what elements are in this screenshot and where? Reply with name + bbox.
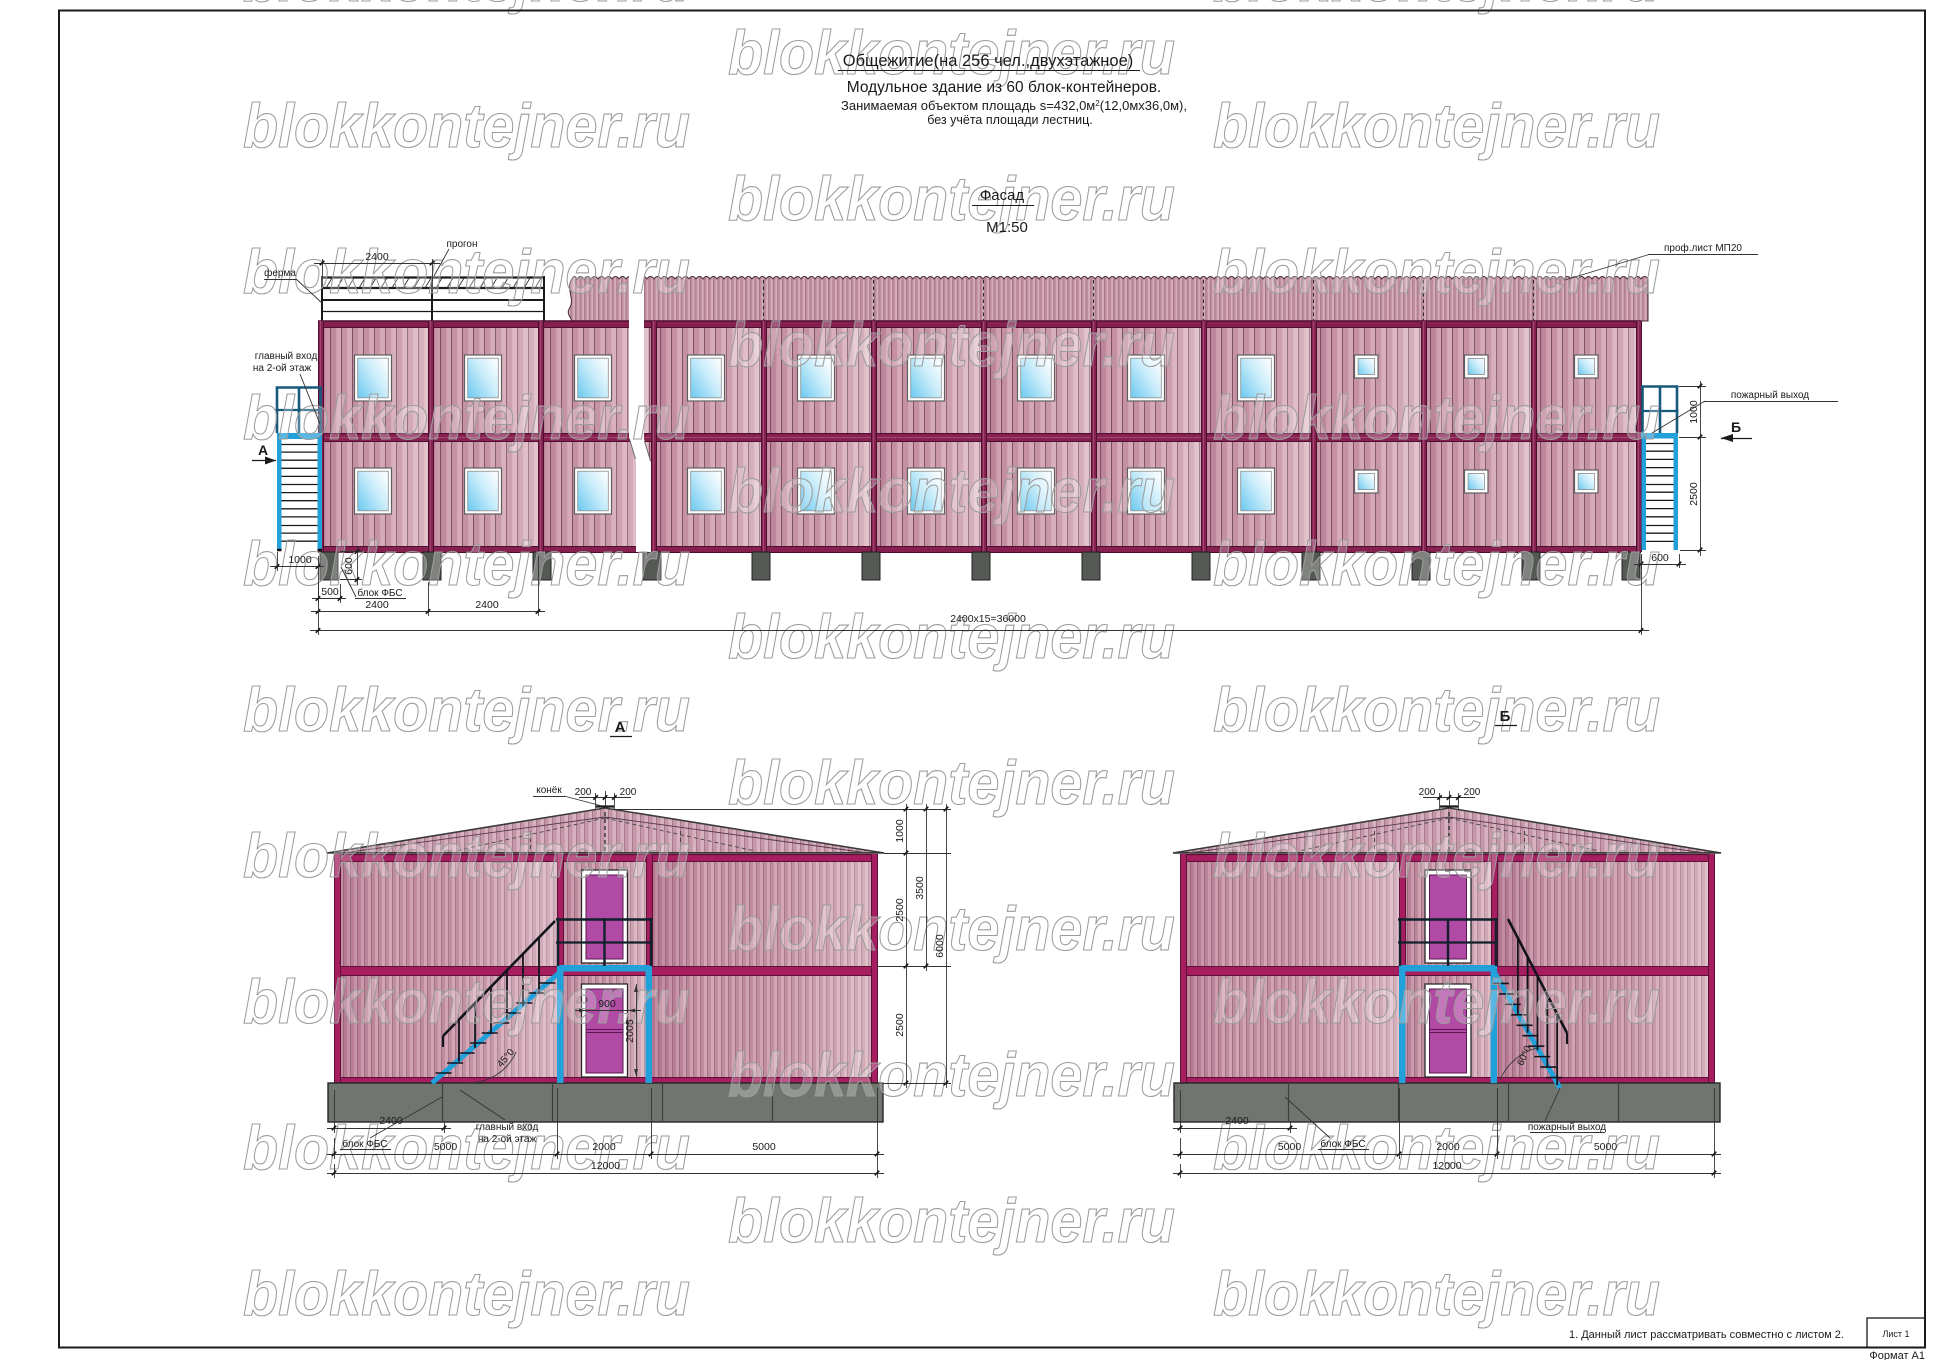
svg-text:200: 200 [1419,787,1436,798]
svg-text:блок ФБС: блок ФБС [1320,1138,1365,1150]
svg-text:1000: 1000 [288,554,312,566]
svg-text:5000: 5000 [1278,1141,1302,1153]
svg-text:А: А [258,442,268,458]
svg-text:500: 500 [321,586,339,598]
svg-text:blokkontejner.ru: blokkontejner.ru [243,822,690,891]
svg-text:2400: 2400 [1225,1115,1249,1127]
svg-text:blokkontejner.ru: blokkontejner.ru [243,1260,690,1329]
svg-text:2500: 2500 [894,898,906,922]
svg-text:blokkontejner.ru: blokkontejner.ru [1213,822,1660,891]
svg-text:5000: 5000 [752,1141,776,1153]
svg-text:Формат А1: Формат А1 [1869,1350,1925,1360]
svg-text:2000: 2000 [1436,1141,1460,1153]
svg-text:6000: 6000 [934,934,946,958]
svg-text:blokkontejner.ru: blokkontejner.ru [728,165,1175,234]
svg-text:Занимаемая объектом площадь: Занимаемая объектом площадь s=432,0м2(12… [841,98,1187,113]
svg-text:1. Данный лист рассматривать с: 1. Данный лист рассматривать совместно с… [1569,1329,1844,1341]
svg-text:2000: 2000 [592,1141,616,1153]
svg-text:блок ФБС: блок ФБС [357,587,402,599]
svg-text:2500: 2500 [1688,482,1700,506]
svg-text:blokkontejner.ru: blokkontejner.ru [1213,92,1660,161]
svg-text:5000: 5000 [1594,1141,1618,1153]
svg-text:проф.лист МП20: проф.лист МП20 [1664,242,1742,254]
svg-text:blokkontejner.ru: blokkontejner.ru [1213,238,1660,307]
svg-text:blokkontejner.ru: blokkontejner.ru [728,1041,1175,1110]
svg-text:2005: 2005 [624,1019,636,1043]
svg-text:blokkontejner.ru: blokkontejner.ru [243,968,690,1037]
svg-text:blokkontejner.ru: blokkontejner.ru [1213,0,1660,15]
svg-text:блок ФБС: блок ФБС [342,1138,387,1150]
svg-text:без учёта площади лестниц.: без учёта площади лестниц. [927,113,1093,127]
svg-text:пожарный выход: пожарный выход [1731,390,1809,401]
svg-text:на 2-ой этаж: на 2-ой этаж [478,1134,537,1145]
svg-text:12000: 12000 [1432,1160,1461,1172]
svg-text:blokkontejner.ru: blokkontejner.ru [1213,676,1660,745]
svg-text:1000: 1000 [1688,400,1700,424]
svg-text:blokkontejner.ru: blokkontejner.ru [243,0,690,15]
svg-text:конёк: конёк [536,785,562,796]
svg-text:2400: 2400 [475,599,499,611]
svg-text:200: 200 [575,787,592,798]
svg-text:blokkontejner.ru: blokkontejner.ru [243,92,690,161]
svg-text:2400: 2400 [365,599,389,611]
svg-text:на 2-ой этаж: на 2-ой этаж [253,363,312,374]
svg-text:Б: Б [1731,419,1741,435]
svg-text:главный вход: главный вход [476,1122,539,1133]
svg-text:blokkontejner.ru: blokkontejner.ru [1213,968,1660,1037]
svg-text:А: А [615,719,626,736]
svg-text:12000: 12000 [591,1160,620,1172]
svg-text:blokkontejner.ru: blokkontejner.ru [243,384,690,453]
svg-text:ферма: ферма [264,267,296,279]
svg-text:blokkontejner.ru: blokkontejner.ru [728,311,1175,380]
svg-text:blokkontejner.ru: blokkontejner.ru [243,1114,690,1183]
svg-text:blokkontejner.ru: blokkontejner.ru [1213,530,1660,599]
svg-text:blokkontejner.ru: blokkontejner.ru [728,457,1175,526]
svg-text:Модульное здание из 60 блок-к: Модульное здание из 60 блок-контейнеров. [847,79,1162,96]
svg-text:600: 600 [343,557,355,575]
svg-text:200: 200 [620,787,637,798]
svg-text:200: 200 [1464,787,1481,798]
svg-text:Б: Б [1500,708,1511,725]
svg-text:Общежитие(на 256 чел.,двухэтаж: Общежитие(на 256 чел.,двухэтажное) [843,52,1134,70]
svg-text:главный вход: главный вход [255,351,318,362]
svg-text:blokkontejner.ru: blokkontejner.ru [728,895,1175,964]
svg-text:2500: 2500 [894,1013,906,1037]
svg-text:blokkontejner.ru: blokkontejner.ru [728,1187,1175,1256]
svg-text:2400х15=36000: 2400х15=36000 [950,613,1026,625]
svg-text:Фасад: Фасад [980,187,1025,204]
svg-text:пожарный выход: пожарный выход [1528,1122,1606,1133]
svg-text:600: 600 [1651,552,1669,564]
svg-text:blokkontejner.ru: blokkontejner.ru [1213,384,1660,453]
svg-text:blokkontejner.ru: blokkontejner.ru [1213,1260,1660,1329]
svg-text:1000: 1000 [894,819,906,843]
svg-text:прогон: прогон [446,239,477,250]
svg-text:5000: 5000 [434,1141,458,1153]
svg-text:2400: 2400 [365,251,389,263]
svg-text:blokkontejner.ru: blokkontejner.ru [728,749,1175,818]
svg-text:Лист 1: Лист 1 [1882,1329,1909,1339]
svg-text:3500: 3500 [914,876,926,900]
svg-text:М1:50: М1:50 [986,219,1028,236]
svg-text:900: 900 [598,998,616,1010]
